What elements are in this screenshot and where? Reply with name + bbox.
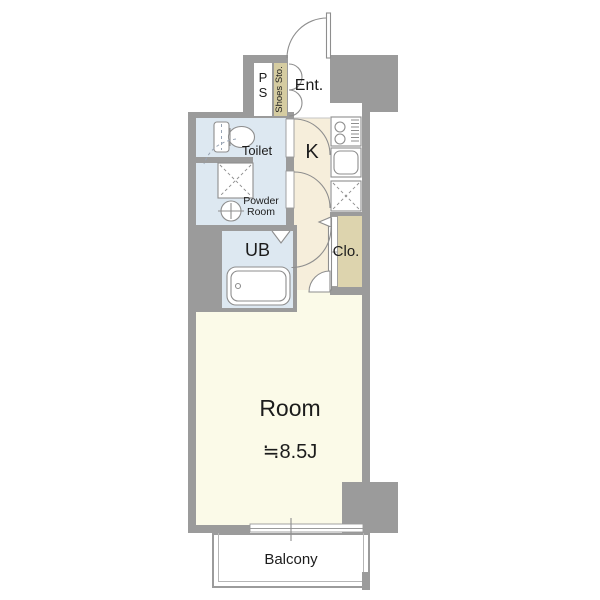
powder-room-label: Powder Room [240,196,282,218]
toilet-label: Toilet [228,143,286,158]
wall-top-right-block [330,55,398,103]
wall-left-of-ps [243,55,253,118]
kitchen-counter-zone [330,103,362,212]
wall-top-entry [243,55,288,62]
shoes-storage-label: Shoes Sto. [272,62,288,117]
closet-label: Clo. [330,243,362,260]
room-label: Room ≒8.5J [214,377,366,482]
wall-left-main [188,112,196,532]
room-name: Room [214,395,366,422]
pillar-bottom-right [342,482,398,533]
room-size: ≒8.5J [214,440,366,464]
wall-toilet-right [286,112,294,225]
entrance-label: Ent. [288,77,330,95]
floor-plan: P S Shoes Sto. Ent. Toilet K Powder Room… [0,0,600,600]
wall-top-right-step [368,103,398,112]
unit-bath-label: UB [222,240,293,261]
kitchen-label: K [294,141,330,164]
balcony-label: Balcony [212,551,370,568]
pipe-space-label: P S [253,70,273,100]
wall-bottom-left [188,525,250,533]
entrance-door [287,13,331,58]
balcony-right-stub [362,572,370,590]
wall-counter-closet-divider [330,212,362,216]
wall-closet-bottom [330,287,362,295]
